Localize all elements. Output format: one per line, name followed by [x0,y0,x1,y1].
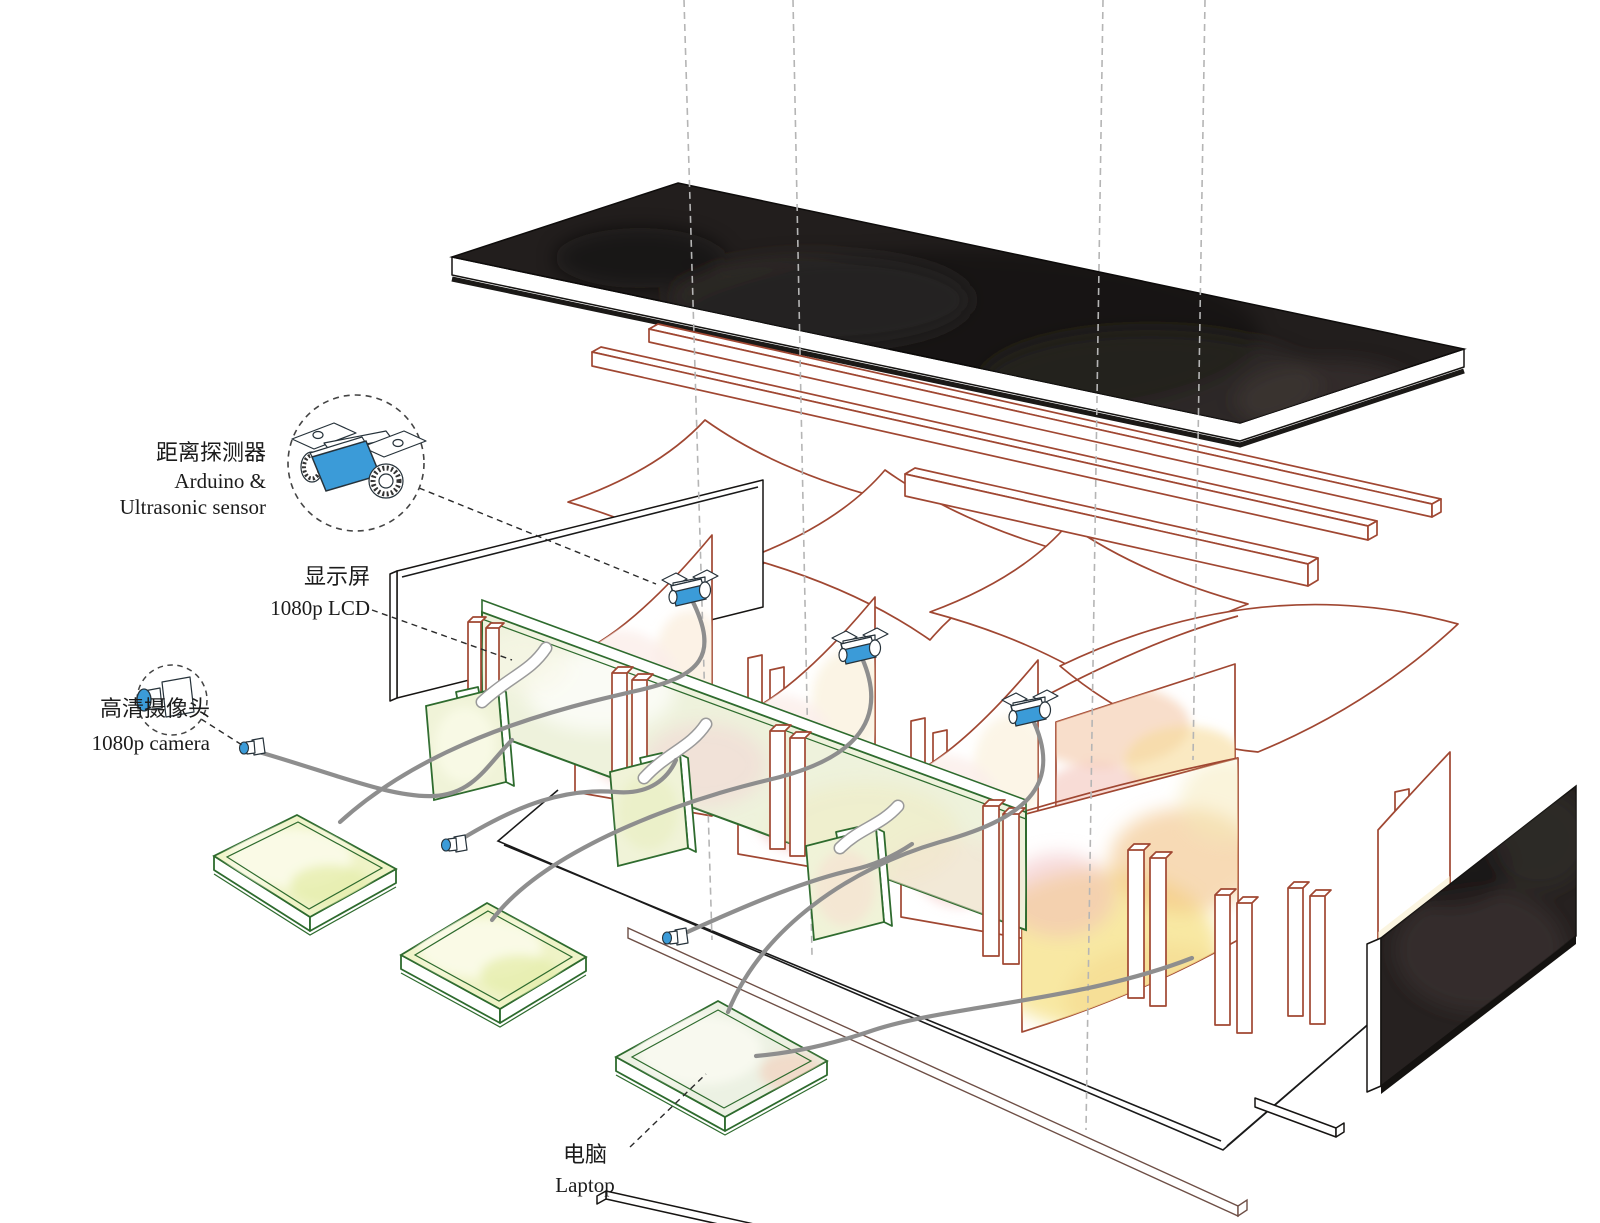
label-ultrasonic-en1: Arduino & [174,469,266,493]
callout-camera: 高清摄像头 1080p camera [92,665,242,755]
rail-long-cap [1238,1200,1247,1216]
diagram-canvas: 距离探测器 Arduino & Ultrasonic sensor 显示屏 10… [0,0,1600,1223]
rail-short-cap [1336,1123,1344,1137]
rear-board-side [390,571,397,701]
rail-short [1255,1098,1336,1137]
black-panel-side-strip [1367,938,1381,1092]
exploded-diagram: 距离探测器 Arduino & Ultrasonic sensor 显示屏 10… [0,0,1600,1223]
label-ultrasonic-en2: Ultrasonic sensor [120,495,266,519]
rail-bottom-left [606,1191,1140,1223]
camera-icon [240,738,266,755]
label-laptop-zh: 电脑 [563,1142,607,1167]
camera-icon [442,835,468,852]
laptop-box-2 [401,903,586,1027]
label-lcd-zh: 显示屏 [304,564,370,589]
label-lcd-en: 1080p LCD [270,596,370,620]
laptop-box-3 [616,1001,827,1135]
beam-3-cap [1308,558,1318,586]
label-ultrasonic-zh: 距离探测器 [156,440,266,465]
label-camera-en: 1080p camera [92,731,211,755]
label-laptop-en: Laptop [555,1173,614,1197]
camera-icon [663,928,689,945]
laptop-box-1 [214,815,396,935]
label-camera-zh: 高清摄像头 [100,696,210,721]
